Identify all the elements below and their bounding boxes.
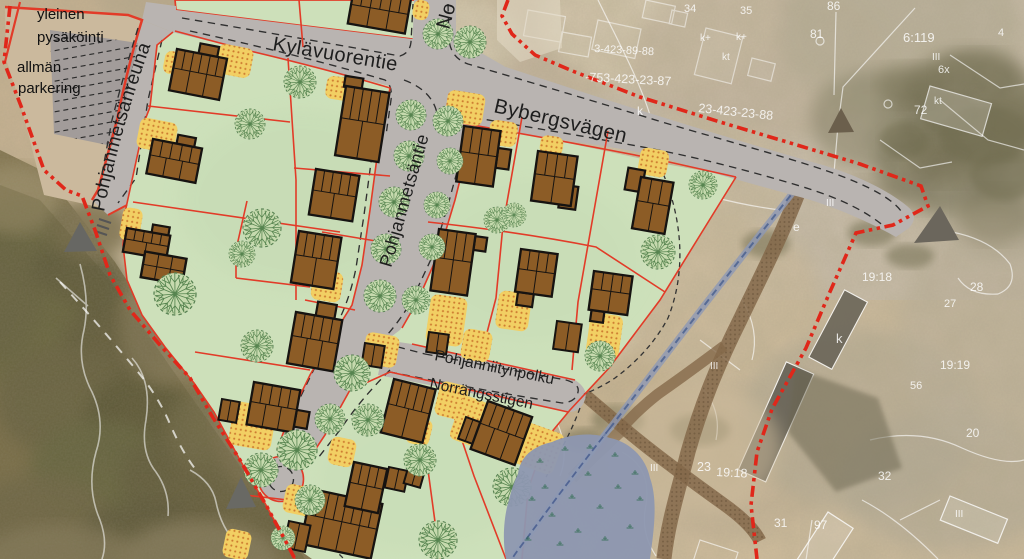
svg-text:k: k	[637, 104, 644, 118]
svg-text:parkering: parkering	[18, 80, 81, 97]
svg-text:III: III	[932, 52, 940, 63]
svg-text:32: 32	[878, 469, 892, 483]
svg-text:31: 31	[774, 516, 788, 530]
svg-text:k+: k+	[736, 32, 747, 43]
svg-text:19:18: 19:18	[716, 465, 748, 481]
svg-text:pysäköinti: pysäköinti	[37, 29, 104, 46]
svg-text:6:119: 6:119	[903, 30, 935, 45]
svg-text:19:18: 19:18	[862, 270, 892, 284]
svg-text:k: k	[836, 331, 843, 346]
svg-text:kt: kt	[934, 96, 942, 107]
svg-text:yleinen: yleinen	[37, 6, 85, 23]
svg-text:28: 28	[970, 280, 984, 294]
svg-text:III: III	[826, 198, 834, 209]
svg-text:k+: k+	[700, 33, 711, 44]
svg-text:III: III	[955, 509, 963, 520]
svg-text:20: 20	[966, 426, 980, 440]
svg-text:35: 35	[740, 5, 752, 17]
svg-text:86: 86	[827, 0, 841, 13]
svg-text:III: III	[650, 463, 658, 474]
svg-text:72: 72	[914, 103, 928, 117]
svg-text:e: e	[793, 220, 800, 234]
svg-text:III: III	[710, 361, 718, 372]
svg-text:34: 34	[684, 3, 696, 15]
svg-text:6x: 6x	[938, 64, 950, 76]
svg-text:allmän: allmän	[17, 59, 61, 76]
svg-text:19:19: 19:19	[940, 358, 970, 372]
svg-text:23: 23	[697, 460, 711, 474]
svg-text:97: 97	[814, 518, 828, 532]
svg-text:56: 56	[910, 380, 922, 392]
svg-text:kt: kt	[722, 52, 730, 63]
svg-text:27: 27	[944, 298, 956, 310]
svg-text:81: 81	[810, 27, 824, 41]
svg-text:4: 4	[998, 27, 1004, 39]
